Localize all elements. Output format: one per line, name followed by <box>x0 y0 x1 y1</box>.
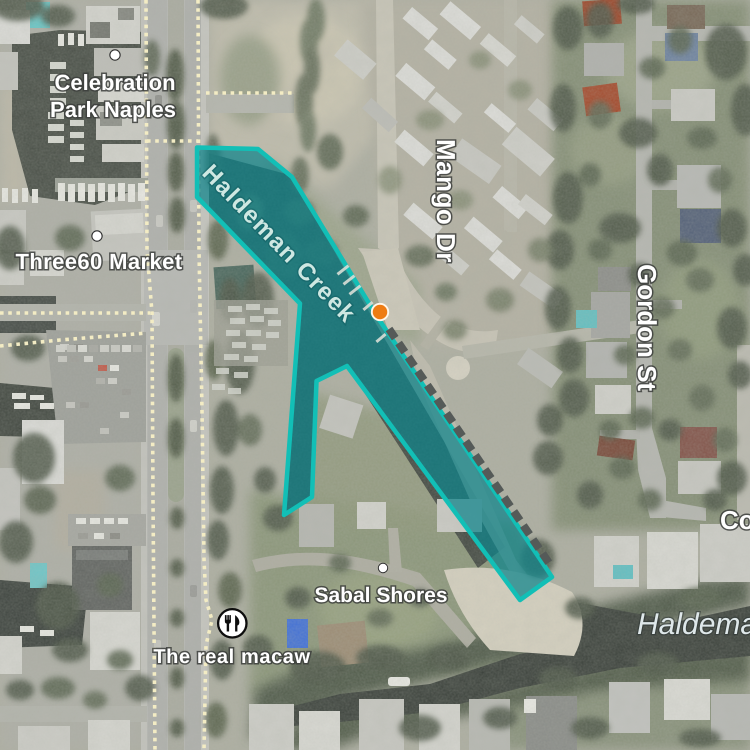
svg-text:Sabal Shores: Sabal Shores <box>314 584 447 607</box>
svg-text:Mango Dr: Mango Dr <box>431 139 461 263</box>
svg-text:Gordon St: Gordon St <box>632 264 662 391</box>
svg-text:Celebration: Celebration <box>54 70 175 95</box>
svg-text:Col: Col <box>720 505 750 535</box>
svg-text:Park Naples: Park Naples <box>50 97 176 122</box>
svg-text:Three60 Market: Three60 Market <box>15 249 182 274</box>
svg-text:Haldeman: Haldeman <box>637 608 750 641</box>
svg-text:The real macaw: The real macaw <box>153 646 310 668</box>
